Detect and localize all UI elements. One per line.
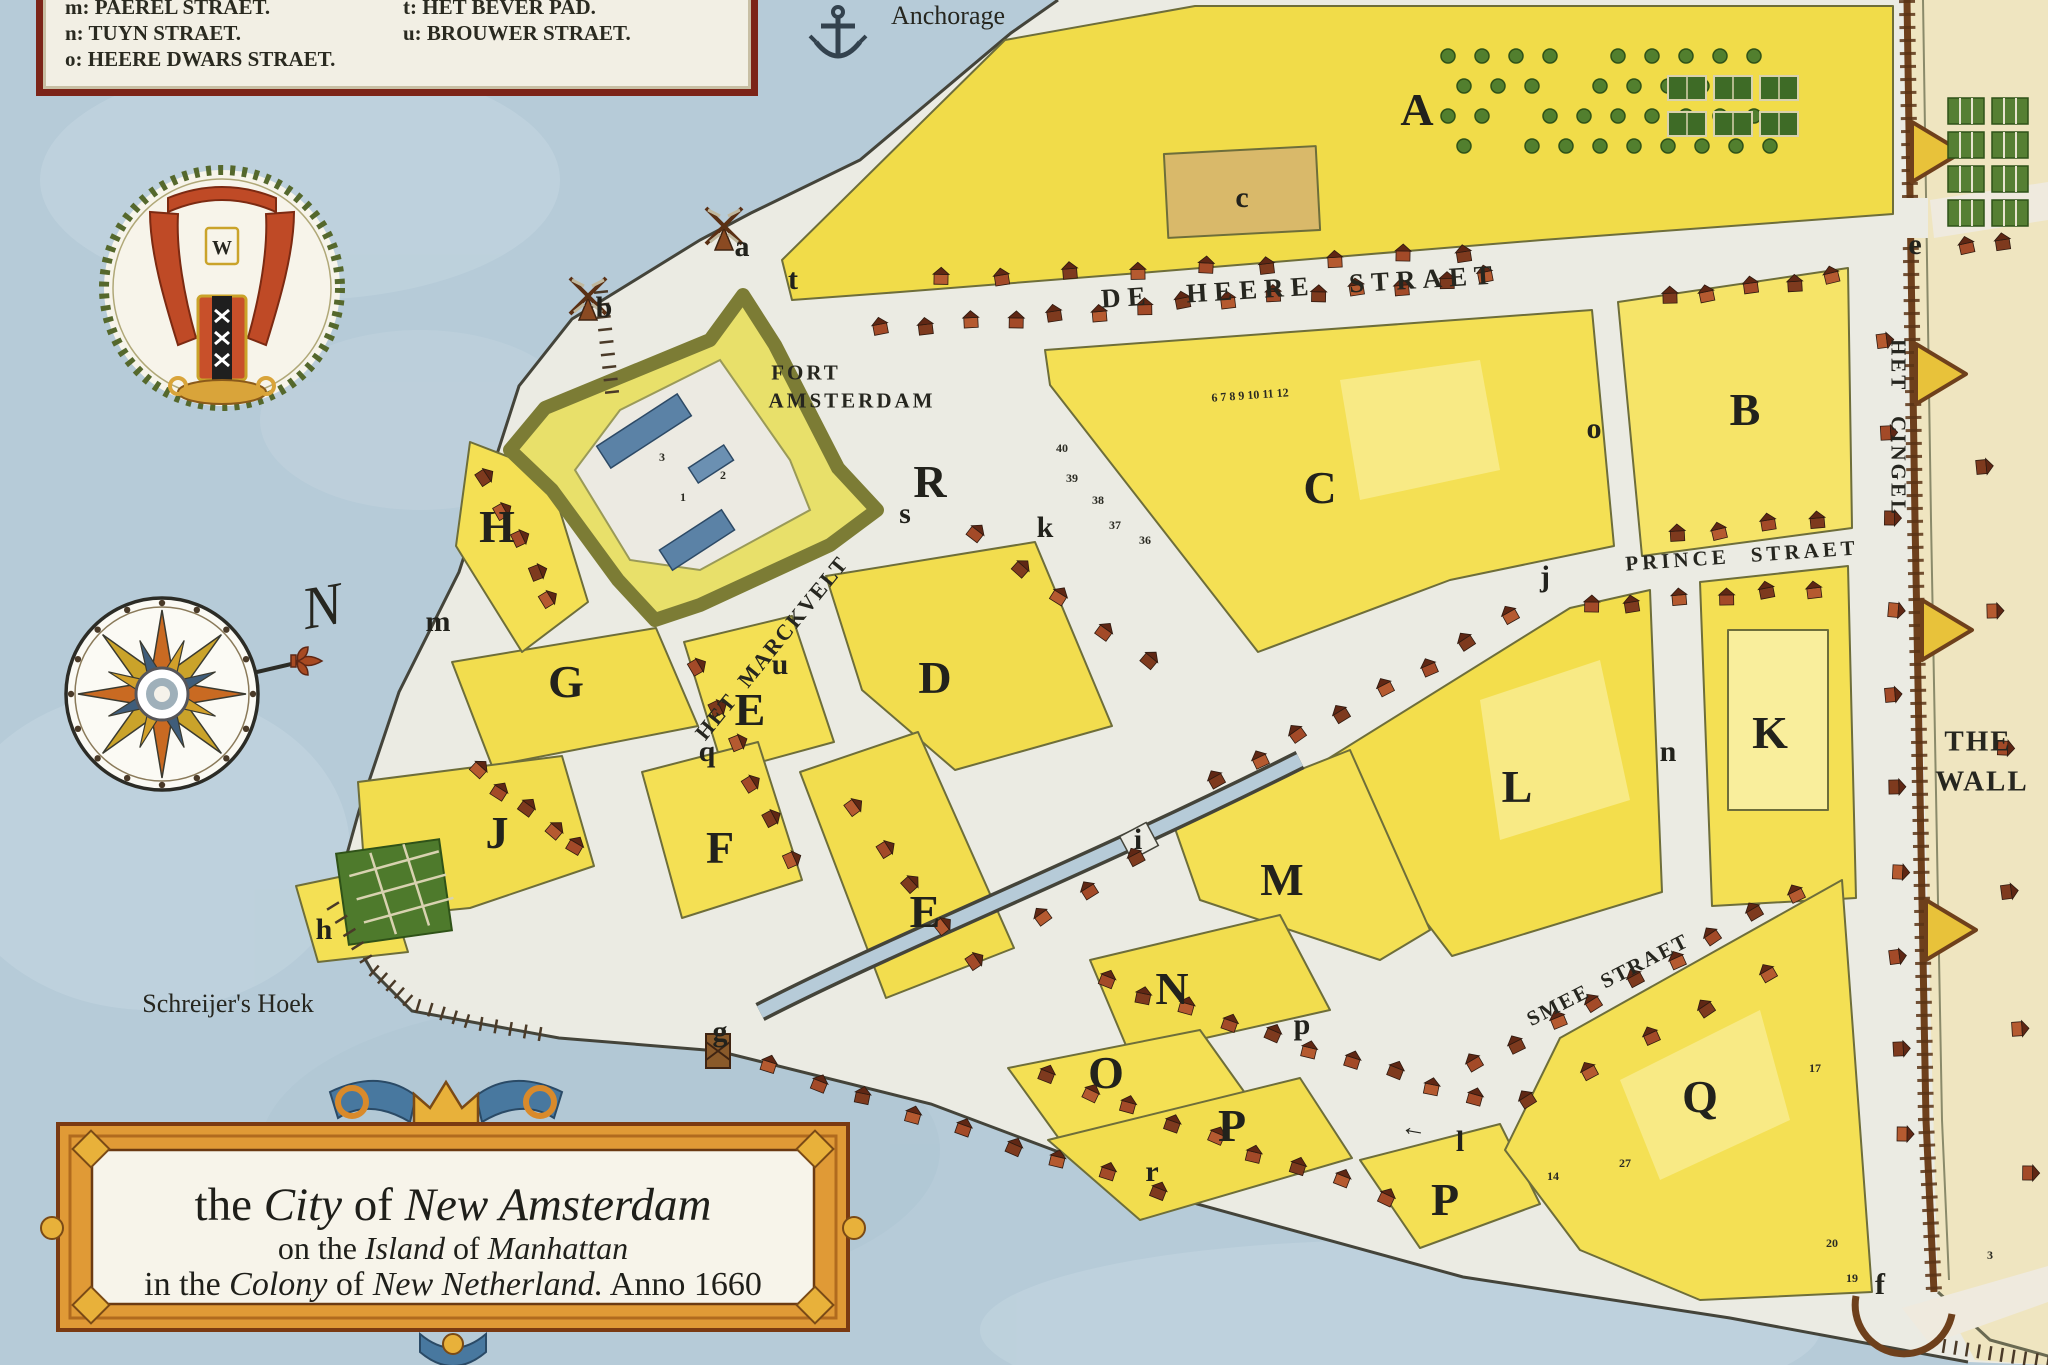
title-segment: of: [327, 1266, 372, 1303]
title-segment: Anno 1660: [603, 1266, 762, 1303]
title-segment: Manhattan: [488, 1230, 628, 1266]
map-title: the City of New Amsterdam on the Island …: [92, 1150, 814, 1304]
site-letter-l: l: [1456, 1127, 1464, 1157]
label-the-wall-line2: WALL: [1935, 768, 2028, 797]
title-segment: New Amsterdam: [405, 1179, 712, 1231]
new-amsterdam-map: m: PAEREL STRAET. n: TUYN STRAET. o: HEE…: [0, 0, 2048, 1365]
lot-number: 1: [680, 491, 686, 503]
block-letter-G: G: [548, 659, 584, 705]
block-letter-P: P: [1431, 1177, 1459, 1223]
block-letter-K: K: [1752, 710, 1788, 756]
lot-number: 36: [1139, 534, 1151, 546]
site-letter-k: k: [1037, 513, 1054, 543]
title-segment: Island: [365, 1230, 445, 1266]
block-letter-H: H: [479, 504, 515, 550]
legend-item: t: HET BEVER PAD.: [403, 0, 596, 20]
street-legend: m: PAEREL STRAET. n: TUYN STRAET. o: HEE…: [36, 0, 758, 96]
site-letter-q: q: [699, 737, 716, 767]
title-segment: New Netherland.: [373, 1266, 603, 1303]
site-letter-m: m: [426, 607, 451, 637]
block-letter-A: A: [1400, 87, 1433, 133]
title-segment: Colony: [229, 1266, 327, 1303]
label-schreijers-hoek: Schreijer's Hoek: [142, 991, 313, 1017]
block-letter-P: P: [1218, 1103, 1246, 1149]
legend-item: m: PAEREL STRAET.: [65, 0, 270, 20]
lot-number: 40: [1056, 442, 1068, 454]
block-letter-N: N: [1155, 966, 1188, 1012]
block-letter-D: D: [918, 655, 951, 701]
site-letter-a: a: [735, 232, 750, 262]
lot-number: 19: [1846, 1272, 1858, 1284]
site-letter-t: t: [788, 265, 798, 295]
site-letter-h: h: [316, 915, 333, 945]
block-letter-F: F: [706, 825, 734, 871]
label-arrow-near-l: ←: [1399, 1113, 1429, 1143]
block-letter-E: E: [735, 687, 766, 733]
map-title-line1: the City of New Amsterdam: [92, 1178, 814, 1232]
block-letter-M: M: [1260, 857, 1303, 903]
legend-item: u: BROUWER STRAET.: [403, 21, 631, 46]
site-letter-g: g: [713, 1017, 728, 1047]
block-letter-Q: Q: [1682, 1074, 1718, 1120]
site-letter-e: e: [1908, 230, 1921, 260]
title-segment: in the: [144, 1266, 229, 1303]
lot-number: 14: [1547, 1170, 1559, 1182]
label-fort-amsterdam-line2: AMSTERDAM: [769, 391, 936, 412]
site-letter-i: i: [1134, 825, 1142, 855]
lot-number: 3: [1987, 1249, 1993, 1261]
site-letter-j: j: [1540, 562, 1550, 592]
label-fort-amsterdam-line1: FORT: [771, 363, 841, 384]
legend-item: o: HEERE DWARS STRAET.: [65, 47, 335, 72]
lot-number: 20: [1826, 1237, 1838, 1249]
lot-number: 37: [1109, 519, 1121, 531]
label-het-cingel: HET CINGEL: [1888, 339, 1909, 517]
lot-number: 38: [1092, 494, 1104, 506]
site-letter-u: u: [772, 650, 789, 680]
site-letter-r: r: [1145, 1157, 1158, 1187]
lot-number: 39: [1066, 472, 1078, 484]
site-letter-c: c: [1235, 183, 1248, 213]
block-letter-C: C: [1303, 465, 1336, 511]
legend-item: n: TUYN STRAET.: [65, 21, 241, 46]
title-segment: the: [195, 1179, 264, 1231]
label-crest-w: W: [212, 238, 232, 258]
lot-number: 2: [720, 469, 726, 481]
coat-of-arms: [104, 170, 340, 406]
site-letter-p: p: [1294, 1010, 1311, 1040]
map-title-line2: on the Island of Manhattan: [92, 1230, 814, 1267]
block-letter-L: L: [1502, 764, 1533, 810]
map-title-line3: in the Colony of New Netherland. Anno 16…: [92, 1266, 814, 1304]
site-letter-b: b: [596, 293, 613, 323]
title-segment: on the: [278, 1230, 365, 1266]
title-segment: of: [445, 1230, 488, 1266]
block-letter-J: J: [486, 810, 509, 856]
block-letter-E: E: [910, 889, 941, 935]
label-the-wall-line1: THE: [1944, 728, 2011, 757]
lot-number: 17: [1809, 1062, 1821, 1074]
block-letter-O: O: [1088, 1050, 1124, 1096]
block-letter-B: B: [1730, 387, 1761, 433]
title-segment: City: [264, 1179, 342, 1231]
site-letter-n: n: [1660, 737, 1677, 767]
lot-number: 3: [659, 451, 665, 463]
site-letter-o: o: [1587, 414, 1602, 444]
site-letter-f: f: [1875, 1270, 1885, 1300]
site-letter-s: s: [899, 499, 911, 529]
block-letter-R: R: [913, 459, 946, 505]
lot-number: 27: [1619, 1157, 1631, 1169]
label-anchorage: Anchorage: [891, 3, 1005, 29]
title-segment: of: [342, 1179, 405, 1231]
